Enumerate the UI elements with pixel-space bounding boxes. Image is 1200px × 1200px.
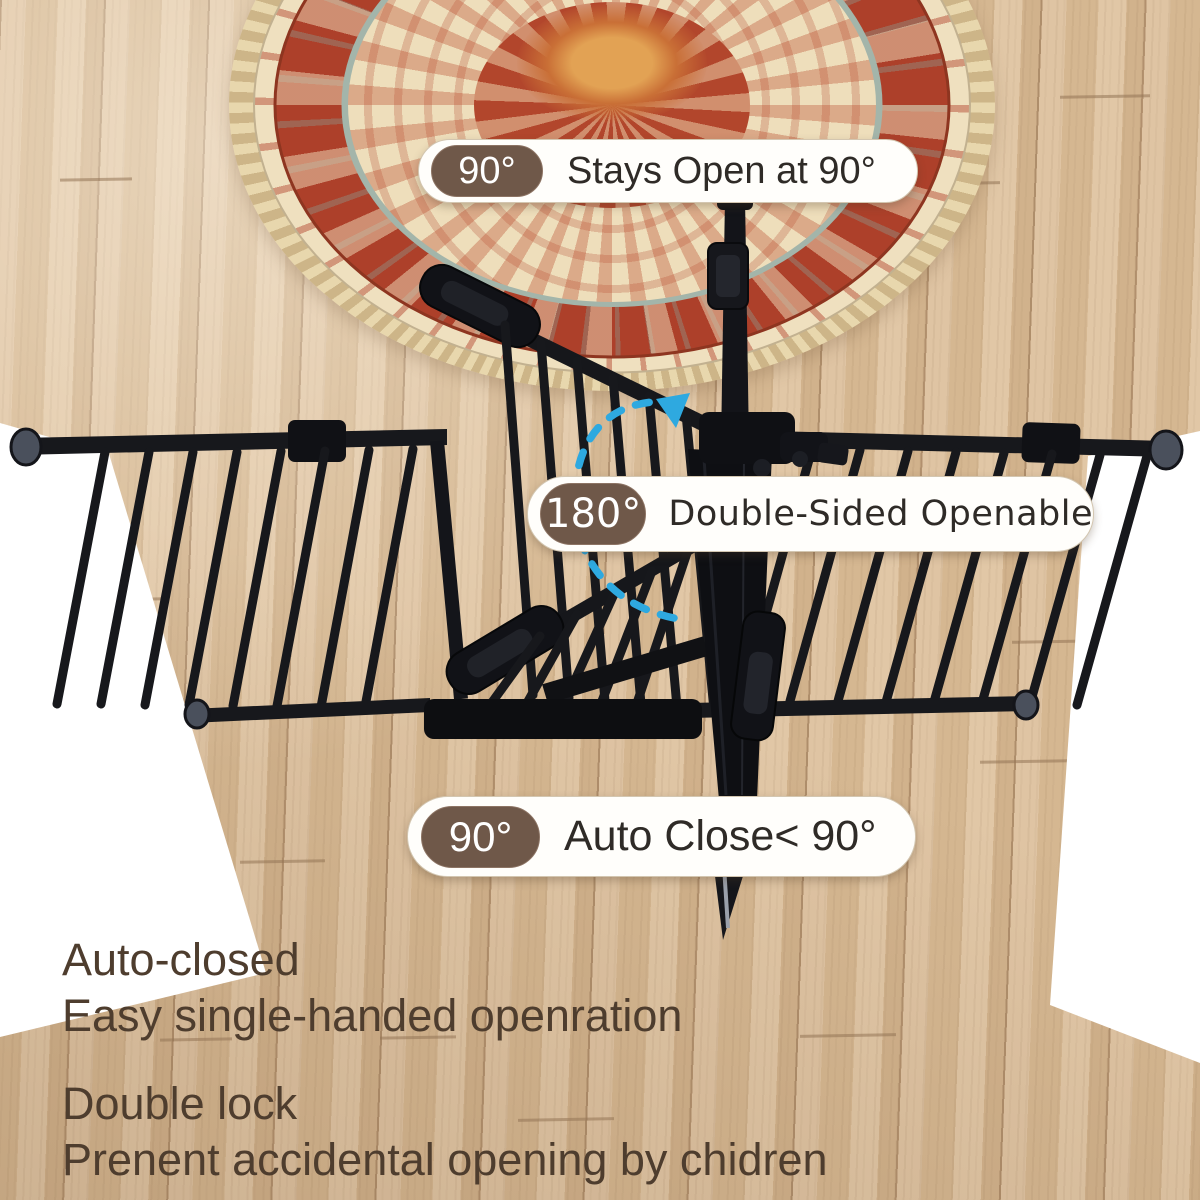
feature-text-double-lock: Double lock Prenent accidental opening b… <box>62 1076 828 1188</box>
callout-double-sided: 180° Double-Sided Openable <box>527 476 1094 552</box>
open-gate-post <box>708 192 753 445</box>
angle-badge: 180° <box>540 483 646 545</box>
gate-handle <box>413 258 547 354</box>
badge-text: 90° <box>449 813 513 861</box>
angle-badge: 90° <box>421 806 540 868</box>
callout-label: Stays Open at 90° <box>567 150 876 193</box>
rail-clamp <box>288 420 346 462</box>
gate-threshold-bar <box>424 699 702 739</box>
callout-auto-close: 90° Auto Close< 90° <box>407 796 916 877</box>
badge-text: 180° <box>545 491 641 537</box>
callout-stays-open: 90° Stays Open at 90° <box>418 139 918 203</box>
wall-mount-cap <box>185 700 209 728</box>
wall-mount-cap <box>1014 691 1038 719</box>
feature-line: Easy single-handed openration <box>62 988 682 1044</box>
badge-text: 90° <box>458 150 515 193</box>
feature-line: Prenent accidental opening by chidren <box>62 1132 828 1188</box>
callout-label: Double-Sided Openable <box>668 494 1093 534</box>
feature-line: Double lock <box>62 1076 828 1132</box>
left-gate-panel <box>11 420 461 728</box>
feature-line: Auto-closed <box>62 932 682 988</box>
feature-text-auto-close: Auto-closed Easy single-handed openratio… <box>62 932 682 1044</box>
wall-mount-cap <box>11 429 41 465</box>
wall-mount-cap <box>1150 431 1182 469</box>
angle-badge: 90° <box>431 145 543 197</box>
callout-label: Auto Close< 90° <box>564 812 876 861</box>
